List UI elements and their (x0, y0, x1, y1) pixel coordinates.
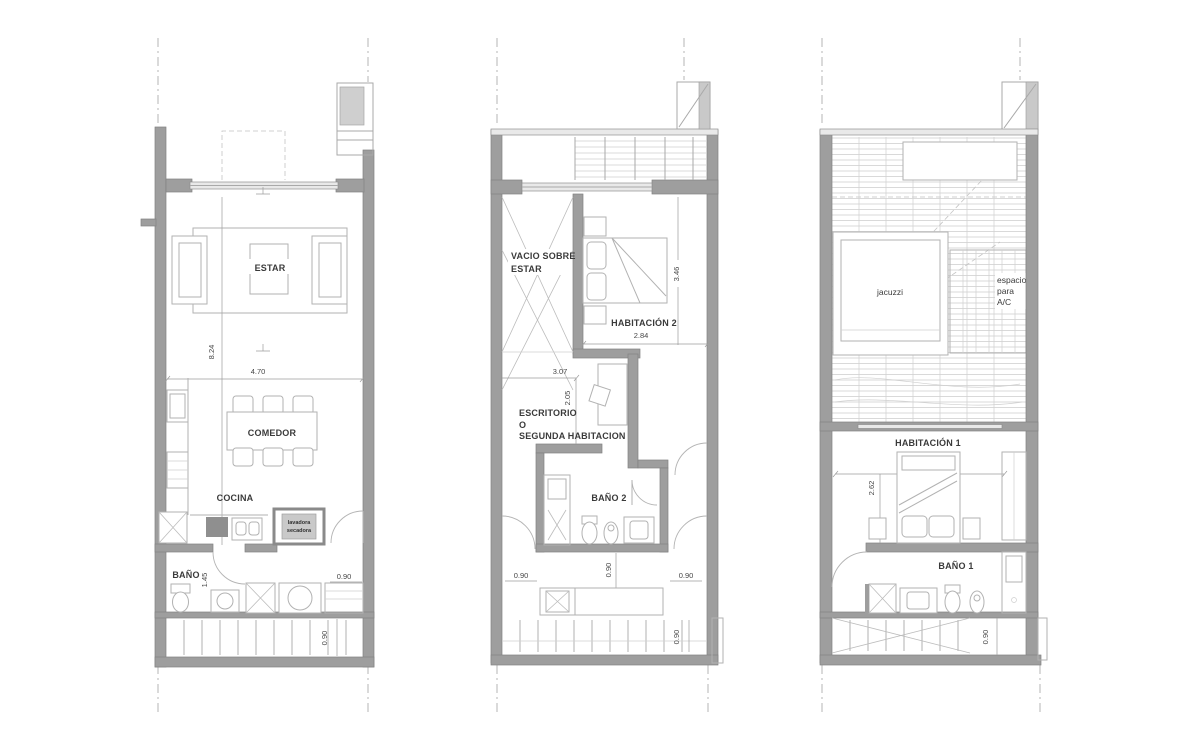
dim-stair: 0.90 (320, 631, 329, 646)
roof-hatch-box (677, 82, 710, 129)
dim-entry: 0.90 (337, 572, 352, 581)
floor-plan-drawing: ESTAR 8.24 4.70 COMEDOR COCINA (0, 0, 1200, 740)
utility-shaft-icon (246, 583, 275, 613)
room-label-bano2: BAÑO 2 (591, 493, 626, 503)
second-floor-plan: VACIO SOBRE ESTAR 3.46 HABITACIÓN 2 2.84… (491, 38, 723, 714)
dim-hab1-depth: 2.62 (867, 481, 876, 496)
label-ac-1: espacio (997, 275, 1027, 285)
roof-hatch-box (1002, 82, 1038, 130)
room-label-estar: ESTAR (255, 263, 286, 273)
dim-esc-depth: 2.05 (563, 391, 572, 406)
closet-icon (325, 583, 363, 613)
bed-icon (583, 217, 667, 324)
dim-bath: 1.45 (200, 573, 209, 588)
kitchen-counter-icon (167, 378, 188, 515)
dim-hab2-depth: 3.46 (672, 267, 681, 282)
overhang-dashed-line (222, 131, 285, 180)
bath-door-icon (213, 552, 245, 584)
side-landing (1038, 618, 1047, 660)
bidet-icon (604, 522, 618, 544)
room-label-escritorio-3: SEGUNDA HABITACION (519, 431, 626, 441)
bath1-door-icon (832, 552, 867, 587)
vanity-icon (624, 517, 654, 543)
dim-door-mid: 0.90 (604, 563, 613, 578)
dim-door-left: 0.90 (514, 571, 529, 580)
nightstand-left-icon (869, 518, 886, 539)
label-ac-3: A/C (997, 297, 1011, 307)
floor-plan-sheet: ESTAR 8.24 4.70 COMEDOR COCINA (0, 0, 1200, 740)
toilet-icon (582, 516, 597, 544)
room-label-hab2: HABITACIÓN 2 (611, 317, 677, 328)
toilet-icon (945, 585, 960, 613)
void-cross (502, 197, 573, 390)
room-label-vacio-1: VACIO SOBRE (511, 251, 576, 261)
washing-machine-icon (279, 583, 321, 613)
room-label-comedor: COMEDOR (248, 428, 297, 438)
balcony-door-left-icon (502, 516, 535, 549)
balcony-slab (540, 588, 663, 615)
washer-dryer-closet: lavadora secadora (274, 509, 324, 544)
hall-door-icon (675, 443, 707, 475)
nightstand-right-icon (963, 518, 980, 539)
label-jacuzzi: jacuzzi (876, 287, 903, 297)
room-label-vacio-2: ESTAR (511, 264, 542, 274)
stove-sink-icon (190, 515, 268, 540)
toilet-icon (171, 584, 190, 612)
sink-icon (211, 590, 239, 612)
ground-floor-plan: ESTAR 8.24 4.70 COMEDOR COCINA (141, 38, 374, 714)
upper-stairs (575, 137, 707, 180)
label-lavadora: lavadora (288, 520, 312, 526)
dim-hab2-width: 2.84 (634, 331, 649, 340)
shaft-icon (865, 584, 896, 613)
room-label-cocina: COCINA (217, 493, 254, 503)
roof-floor-plan: jacuzzi espacio para A/C HABITACIÓN 1 4.… (820, 38, 1047, 714)
vanity-icon (900, 588, 937, 613)
skylight (903, 142, 1017, 180)
label-secadora: secadora (287, 528, 312, 534)
dim-stair: 0.90 (981, 630, 990, 645)
wardrobe-icon (1002, 452, 1026, 540)
room-label-escritorio-1: ESCRITORIO (519, 408, 577, 418)
dim-width: 4.70 (251, 367, 266, 376)
stairs (832, 618, 970, 653)
property-line (497, 38, 708, 714)
entry-door-icon (331, 511, 363, 543)
sofa-right-icon (312, 236, 347, 304)
bed-icon (897, 452, 960, 543)
label-ac-2: para (997, 286, 1014, 296)
bath2-door-icon (632, 480, 657, 505)
shower-icon (1002, 552, 1026, 613)
dim-length: 8.24 (207, 345, 216, 360)
shaft-box (337, 83, 373, 155)
sofa-left-icon (172, 236, 207, 304)
shower-icon (544, 475, 570, 545)
room-label-hab1: HABITACIÓN 1 (895, 437, 961, 448)
dim-stair: 0.90 (672, 630, 681, 645)
room-label-bano: BAÑO (172, 570, 199, 580)
dim-door-right: 0.90 (679, 571, 694, 580)
desk-icon (589, 364, 627, 425)
room-label-escritorio-2: O (519, 420, 526, 430)
shaft-icon (159, 512, 187, 543)
dim-esc-width: 3.07 (553, 367, 568, 376)
bidet-icon (970, 591, 984, 613)
room-label-bano1: BAÑO 1 (938, 561, 973, 571)
balcony-door-right-icon (674, 516, 707, 549)
